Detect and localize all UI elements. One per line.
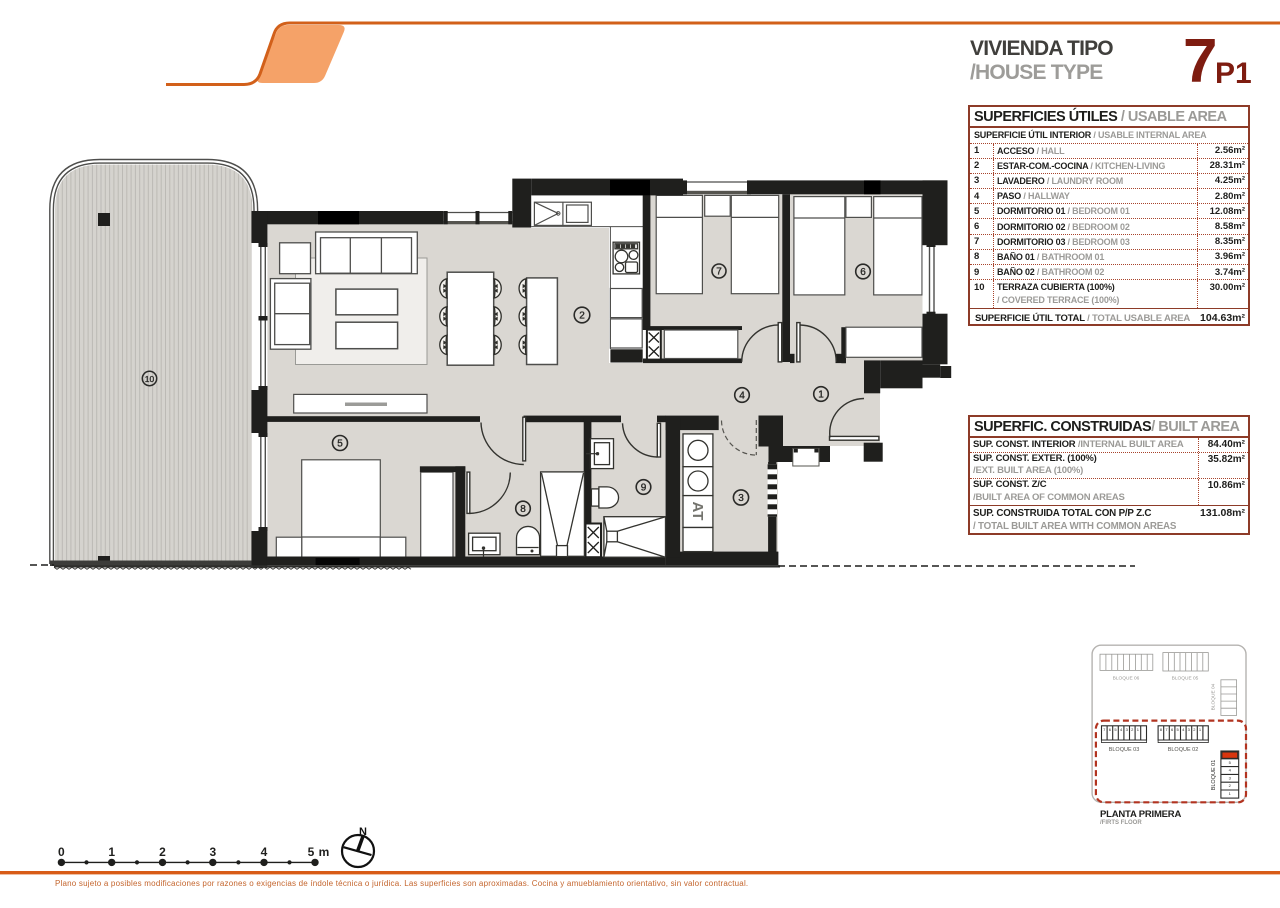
svg-text:/FIRTS FLOOR: /FIRTS FLOOR xyxy=(1100,820,1142,826)
svg-text:5: 5 xyxy=(308,845,315,859)
svg-text:6: 6 xyxy=(860,267,866,278)
svg-text:5: 5 xyxy=(337,439,343,450)
svg-text:4: 4 xyxy=(739,391,745,402)
svg-text:9: 9 xyxy=(641,483,647,494)
svg-text:2: 2 xyxy=(579,311,585,322)
svg-text:AT: AT xyxy=(689,502,706,521)
svg-text:1: 1 xyxy=(108,845,115,859)
svg-text:m: m xyxy=(319,845,330,859)
svg-text:BLOQUE 02: BLOQUE 02 xyxy=(1168,747,1199,753)
svg-text:3: 3 xyxy=(209,845,216,859)
svg-text:1: 1 xyxy=(818,390,824,401)
svg-text:2: 2 xyxy=(159,845,166,859)
svg-text:4: 4 xyxy=(261,845,268,859)
svg-text:BLOQUE 04: BLOQUE 04 xyxy=(1211,683,1217,710)
svg-text:10: 10 xyxy=(145,374,155,384)
svg-text:BLOQUE 01: BLOQUE 01 xyxy=(1211,760,1217,791)
svg-text:3: 3 xyxy=(738,493,744,504)
svg-text:8: 8 xyxy=(520,504,526,515)
svg-text:BLOQUE 06: BLOQUE 06 xyxy=(1113,676,1140,682)
svg-text:PLANTA PRIMERA: PLANTA PRIMERA xyxy=(1100,809,1181,820)
svg-text:0: 0 xyxy=(58,845,65,859)
svg-text:BLOQUE 05: BLOQUE 05 xyxy=(1172,676,1199,682)
svg-text:BLOQUE 03: BLOQUE 03 xyxy=(1109,747,1140,753)
svg-text:N: N xyxy=(359,826,367,838)
svg-text:7: 7 xyxy=(716,267,722,278)
